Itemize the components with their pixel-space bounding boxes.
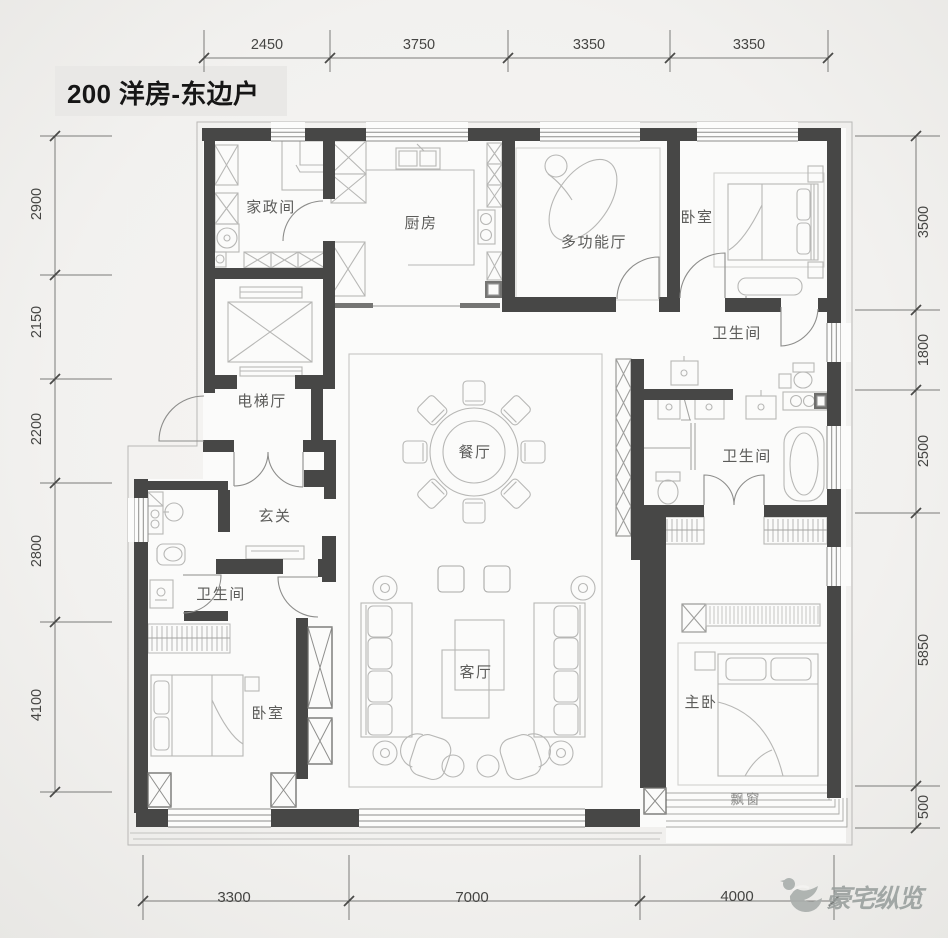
svg-text:卧室: 卧室 — [251, 705, 284, 722]
svg-text:主卧: 主卧 — [684, 694, 717, 711]
svg-text:卫生间: 卫生间 — [712, 325, 762, 342]
svg-text:2500: 2500 — [916, 435, 932, 467]
svg-text:4100: 4100 — [29, 689, 45, 721]
svg-text:卫生间: 卫生间 — [196, 586, 246, 603]
svg-text:2450: 2450 — [251, 37, 283, 53]
svg-text:电梯厅: 电梯厅 — [237, 393, 287, 410]
svg-text:厨房: 厨房 — [404, 215, 437, 232]
svg-text:5850: 5850 — [916, 634, 932, 666]
svg-text:3300: 3300 — [217, 889, 250, 906]
svg-text:200 洋房-东边户: 200 洋房-东边户 — [67, 79, 259, 109]
svg-text:2800: 2800 — [29, 535, 45, 567]
svg-text:3350: 3350 — [733, 37, 765, 53]
svg-text:客厅: 客厅 — [459, 664, 492, 681]
svg-text:2200: 2200 — [29, 413, 45, 445]
svg-text:豪宅纵览: 豪宅纵览 — [826, 885, 927, 913]
svg-text:多功能厅: 多功能厅 — [561, 234, 627, 251]
svg-text:餐厅: 餐厅 — [458, 444, 491, 461]
svg-text:7000: 7000 — [455, 889, 488, 906]
svg-text:玄关: 玄关 — [258, 508, 291, 525]
svg-text:500: 500 — [916, 795, 932, 819]
svg-text:3750: 3750 — [403, 37, 435, 53]
svg-text:卧室: 卧室 — [680, 209, 713, 226]
svg-text:卫生间: 卫生间 — [722, 448, 772, 465]
svg-text:家政间: 家政间 — [246, 199, 296, 216]
svg-text:2150: 2150 — [29, 306, 45, 338]
svg-text:3500: 3500 — [916, 206, 932, 238]
svg-text:飘窗: 飘窗 — [731, 791, 762, 807]
svg-text:4000: 4000 — [720, 888, 753, 905]
svg-text:1800: 1800 — [916, 334, 932, 366]
svg-text:2900: 2900 — [29, 188, 45, 220]
svg-text:3350: 3350 — [573, 37, 605, 53]
